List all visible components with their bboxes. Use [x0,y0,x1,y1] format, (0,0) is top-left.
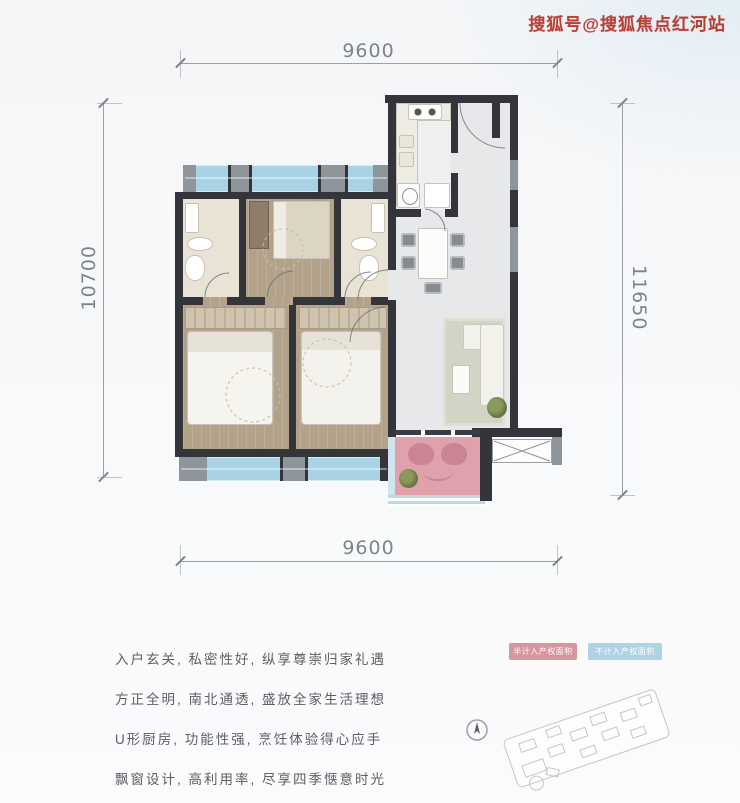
watermark-text: 搜狐号@搜狐焦点红河站 [528,10,726,35]
dimension-bottom-line [180,561,557,562]
site-plan-thumbnail [455,670,685,795]
dimension-top-label: 9600 [180,40,557,62]
dimension-top-line [180,63,557,64]
description-line-1: 入户玄关, 私密性好, 纵享尊崇归家礼遇 [115,648,386,668]
dimension-right-label: 11650 [628,265,650,330]
plan-overlay-arcs [175,95,565,515]
legend-half-counted-area: 半计入产权面积 [509,643,577,660]
dimension-left-line [103,103,104,477]
legend-not-counted-area: 不计入产权面积 [588,643,662,660]
floor-plan [175,95,565,515]
dimension-left-label: 10700 [78,245,100,310]
compass-icon [467,720,487,740]
dimension-bottom-label: 9600 [180,537,557,559]
description-line-2: 方正全明, 南北通透, 盛放全家生活理想 [115,688,386,708]
dimension-right-line [622,103,623,495]
description-line-3: U形厨房, 功能性强, 烹饪体验得心应手 [115,728,382,748]
description-line-4: 飘窗设计, 高利用率, 尽享四季惬意时光 [115,768,386,788]
